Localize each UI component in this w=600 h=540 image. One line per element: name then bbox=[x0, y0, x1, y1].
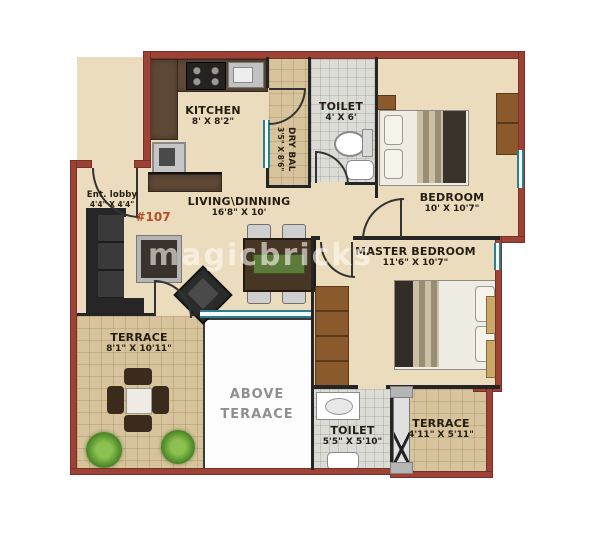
plant-icon bbox=[86, 432, 122, 468]
toilet-top-door-leaf bbox=[315, 151, 317, 183]
wall-toilet-bottom bbox=[345, 182, 378, 185]
door-jamb bbox=[390, 386, 413, 398]
plant-icon bbox=[161, 430, 195, 464]
sink-icon bbox=[228, 62, 264, 88]
master-bed bbox=[394, 280, 500, 370]
bedroom-headboard bbox=[443, 111, 466, 183]
wall-living-terrace-a bbox=[77, 313, 154, 316]
fridge-inner bbox=[159, 148, 175, 166]
bedroom-nightstand bbox=[376, 95, 396, 110]
master-bed-foot bbox=[395, 281, 413, 367]
watermark: magicbricks bbox=[148, 238, 373, 273]
master-blanket bbox=[413, 281, 439, 367]
ent-lobby-label: Ent. lobby 4'4" X 4'4" bbox=[80, 190, 144, 209]
bedroom-window bbox=[517, 150, 524, 188]
master-window bbox=[494, 243, 501, 270]
basin-bowl bbox=[325, 398, 353, 415]
wall-bedroom-left bbox=[375, 185, 378, 198]
washbasin-icon bbox=[316, 392, 360, 420]
wall-lobby-top-b bbox=[134, 160, 151, 168]
wall-toilet-bottom-right bbox=[390, 389, 393, 470]
door-jamb bbox=[390, 462, 413, 474]
floor-plan: KITCHEN 8' X 8'2" DRY BAL 3'5" X 8'6" TO… bbox=[0, 0, 600, 540]
master-wardrobe bbox=[315, 286, 349, 386]
wall-top bbox=[143, 51, 525, 59]
toilet-bottom-label: TOILET 5'5" X 5'10" bbox=[315, 424, 390, 448]
bedroom-label: BEDROOM 10' X 10'7" bbox=[402, 191, 502, 215]
wall-right-upper bbox=[518, 51, 525, 243]
living-terrace-window bbox=[200, 310, 311, 318]
accent-chair-cushion bbox=[187, 278, 218, 309]
wall-drybal-bottom bbox=[266, 185, 311, 188]
stove-icon bbox=[186, 62, 226, 90]
above-terrace-label: ABOVE TERAACE bbox=[207, 385, 307, 424]
washbasin-icon bbox=[346, 160, 374, 180]
bedroom-wardrobe bbox=[496, 93, 520, 155]
terrace-right-label: TERRACE 4'11" X 5'11" bbox=[398, 417, 484, 441]
patio-table bbox=[126, 388, 152, 414]
terrace-door-leaf bbox=[154, 280, 156, 316]
fridge-icon bbox=[152, 142, 186, 176]
terrace-left-label: TERRACE 8'1" X 10'11" bbox=[89, 331, 189, 355]
bedroom-bed bbox=[379, 110, 469, 186]
wc-tank bbox=[362, 129, 373, 157]
living-label: LIVING\DINNING 16'8" X 10' bbox=[159, 195, 319, 219]
kitchen-label: KITCHEN 8' X 8'2" bbox=[158, 104, 268, 128]
wall-left bbox=[70, 160, 77, 475]
bedroom-blanket bbox=[417, 111, 443, 183]
patio-chair bbox=[124, 415, 152, 432]
wall-kitchen-left bbox=[143, 51, 151, 168]
sofa-chaise bbox=[86, 298, 144, 313]
patio-chair bbox=[124, 368, 152, 385]
wall-right-terrace bbox=[486, 385, 493, 478]
drybal-door-leaf bbox=[269, 88, 304, 90]
wall-bottom bbox=[70, 468, 395, 475]
wall-kitchen-drybal-top bbox=[266, 57, 269, 88]
sofa-seat bbox=[98, 215, 124, 299]
patio-chair bbox=[107, 386, 124, 414]
kitchen-platform bbox=[148, 172, 222, 192]
sink-basin bbox=[233, 67, 253, 83]
patio-chair bbox=[152, 386, 169, 414]
drybal-label: DRY BAL 3'5" X 8'6" bbox=[276, 118, 296, 180]
toilet-top-label: TOILET 4' X 6' bbox=[306, 100, 376, 124]
wall-master-bottom-a bbox=[311, 385, 358, 389]
